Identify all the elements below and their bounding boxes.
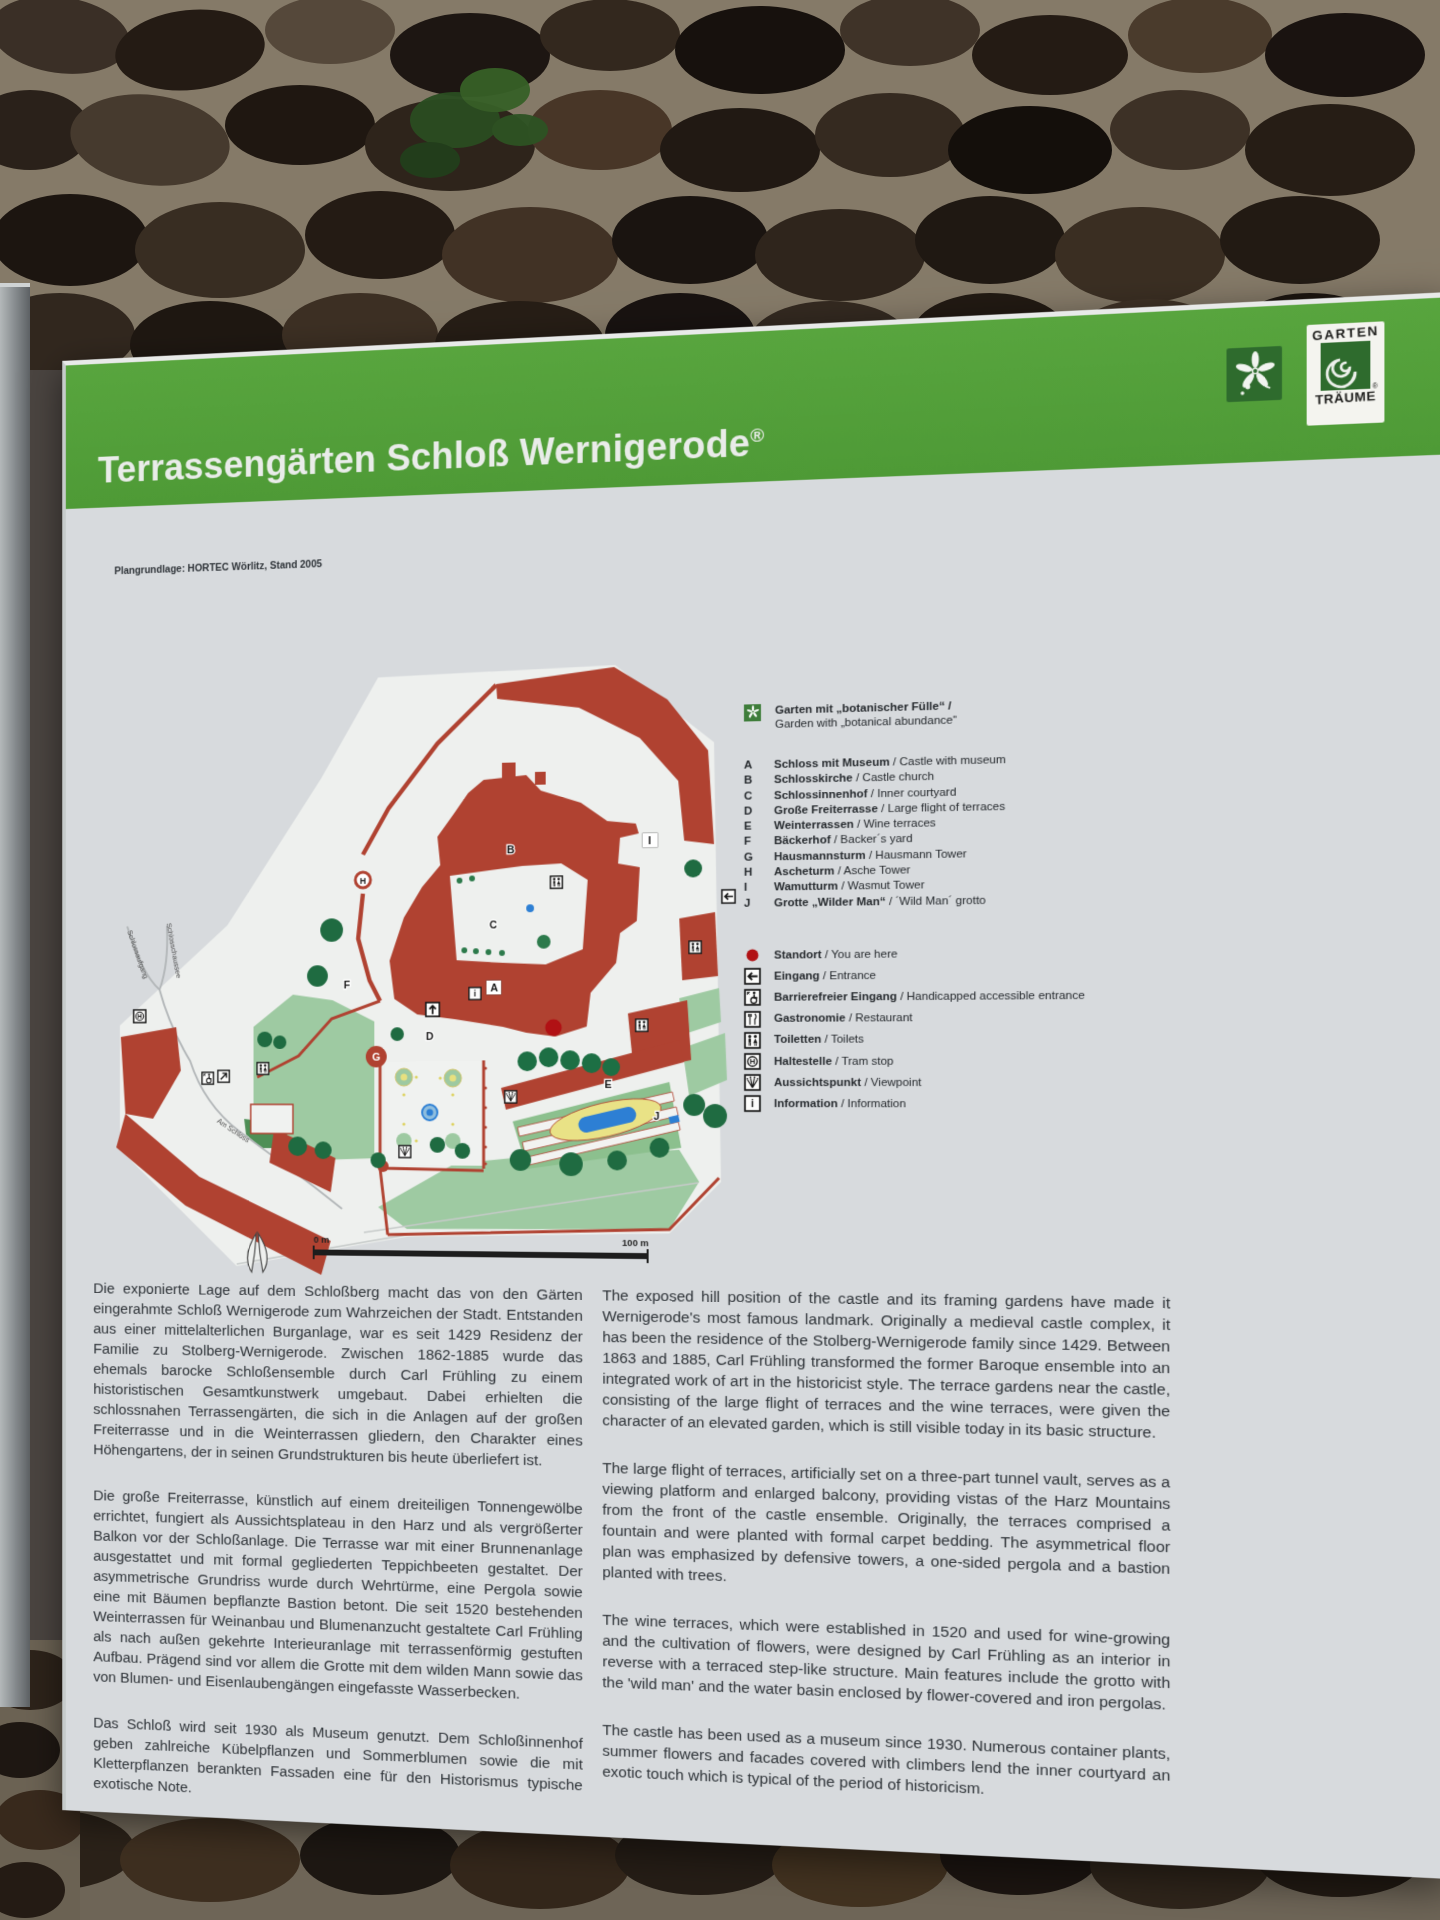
handicapped-icon xyxy=(744,989,761,1006)
legend-symbol-row: Barrierefreier Eingang / Handicapped acc… xyxy=(744,984,1229,1008)
svg-text:C: C xyxy=(489,919,497,931)
viewpoint-icon xyxy=(505,1091,517,1103)
tram-stop-icon xyxy=(134,1010,146,1023)
information-icon xyxy=(744,1095,761,1112)
svg-text:H: H xyxy=(360,876,366,886)
flower-icon xyxy=(1235,350,1276,395)
site-map: Schlossaufgang Schlosschaussee Am Schlos… xyxy=(102,650,739,1286)
toilets-icon xyxy=(744,1032,761,1049)
body-text-german: Die exponierte Lage auf dem Schloßberg m… xyxy=(93,1279,582,1844)
svg-text:100 m: 100 m xyxy=(622,1238,649,1248)
logo-text-traeume: TRÄUME xyxy=(1306,388,1384,408)
svg-text:F: F xyxy=(344,979,351,991)
information-panel: Terrassengärten Schloß Wernigerode® GART… xyxy=(62,292,1440,1879)
svg-text:A: A xyxy=(490,982,498,994)
legend-symbol-row: Eingang / Entrance xyxy=(744,962,1229,987)
svg-text:I: I xyxy=(648,835,651,847)
legend-places-list: ASchloss mit Museum / Castle with museum… xyxy=(744,748,1229,912)
toilets-icon xyxy=(550,876,562,888)
paragraph: Die exponierte Lage auf dem Schloßberg m… xyxy=(93,1279,582,1473)
legend-symbol-row: Haltestelle / Tram stop xyxy=(744,1050,1229,1072)
tram-stop-icon xyxy=(744,1053,761,1070)
you-are-here-icon xyxy=(744,947,761,964)
map-legend: Garten mit „botanischer Fülle“ /Garden w… xyxy=(744,692,1229,1115)
svg-text:E: E xyxy=(605,1079,612,1091)
you-are-here-dot xyxy=(545,1019,562,1036)
toilets-icon xyxy=(689,941,701,953)
svg-text:0 m: 0 m xyxy=(314,1235,329,1245)
legend-symbol-row: Gastronomie / Restaurant xyxy=(744,1006,1229,1030)
toilets-icon xyxy=(257,1063,269,1075)
paragraph: The large flight of terraces, artificial… xyxy=(602,1458,1170,1602)
svg-text:D: D xyxy=(426,1031,434,1043)
svg-text:G: G xyxy=(372,1052,380,1064)
svg-text:Schlossaufgang: Schlossaufgang xyxy=(125,929,150,980)
gartentraeume-logo: GARTEN ® TRÄUME xyxy=(1307,321,1385,425)
restaurant-icon xyxy=(744,1010,761,1027)
viewpoint-icon xyxy=(399,1146,411,1158)
legend-garden-en: Garden with „botanical abundance“ xyxy=(775,714,957,730)
paragraph: The wine terraces, which were establishe… xyxy=(602,1610,1170,1716)
legend-garden-item: Garten mit „botanischer Fülle“ /Garden w… xyxy=(744,692,1229,732)
viewpoint-icon xyxy=(744,1074,761,1091)
diagonal-arrow-icon xyxy=(218,1070,229,1082)
spiral-icon: ® xyxy=(1321,341,1371,391)
legend-symbol-row: Toiletten / Toilets xyxy=(744,1028,1229,1051)
harz-flower-logo xyxy=(1226,346,1282,402)
entrance-arrow-icon xyxy=(744,968,761,985)
legend-symbols-list: Standort / You are here Eingang / Entran… xyxy=(744,940,1229,1115)
sign-post xyxy=(0,283,30,1707)
svg-text:J: J xyxy=(653,1111,659,1123)
paragraph: The castle has been used as a museum sin… xyxy=(602,1720,1170,1809)
handicapped-icon xyxy=(202,1072,213,1084)
registered-mark: ® xyxy=(750,426,764,448)
paragraph: The exposed hill position of the castle … xyxy=(602,1285,1170,1444)
entrance-up-arrow-icon xyxy=(426,1003,440,1017)
logo-text-garten: GARTEN xyxy=(1306,323,1384,344)
legend-symbol-row: Information / Information xyxy=(744,1093,1229,1115)
information-icon xyxy=(469,987,481,999)
paragraph: Die große Freiterrasse, künstlich auf ei… xyxy=(93,1486,582,1707)
entrance-arrow-icon xyxy=(722,890,735,903)
botanical-garden-icon xyxy=(744,704,761,721)
legend-symbol-row: Aussichtspunkt / Viewpoint xyxy=(744,1072,1229,1094)
svg-text:B: B xyxy=(507,844,515,856)
panel-body: Plangrundlage: HORTEC Wörlitz, Stand 200… xyxy=(66,454,1440,1879)
body-text-english: The exposed hill position of the castle … xyxy=(602,1285,1170,1836)
toilets-icon xyxy=(636,1019,648,1031)
paragraph: Das Schloß wird seit 1930 als Museum gen… xyxy=(93,1713,582,1817)
plan-credit: Plangrundlage: HORTEC Wörlitz, Stand 200… xyxy=(114,558,322,577)
